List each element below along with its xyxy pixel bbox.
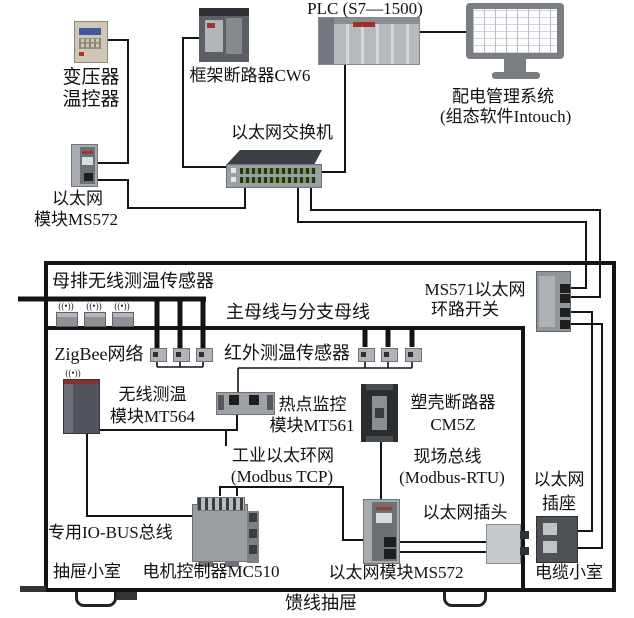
side-port — [249, 545, 257, 554]
module-stripe — [376, 507, 392, 510]
infrared-sensor-icon — [358, 348, 375, 362]
mt564-wireless-temp-module — [63, 379, 100, 434]
monitor-stand — [504, 59, 526, 72]
iobus-label: 专用IO-BUS总线 — [48, 524, 203, 542]
monitor-device — [466, 3, 564, 59]
module-side — [64, 384, 73, 433]
switch-led — [231, 177, 236, 182]
wireless-temp-sensor-icon — [112, 312, 134, 327]
plug-pin — [520, 547, 529, 555]
cm5z-label-line1: 塑壳断路器 — [399, 394, 507, 412]
module-stripe — [82, 151, 93, 154]
monitor-screen — [473, 9, 557, 53]
ms571-label-line2: 环路开关 — [405, 301, 525, 319]
diagram-root: ((•)) ((•)) ((•)) ((•)) — [0, 0, 634, 618]
cable-cell-label: 电缆小室 — [526, 564, 612, 582]
mt561-hotspot-module — [216, 392, 275, 415]
transformer-temp-controller-device — [74, 21, 108, 63]
breaker-tab — [366, 384, 393, 390]
cw6-frame-breaker-device — [199, 8, 249, 62]
feeder-drawer-label: 馈线抽屉 — [274, 594, 368, 613]
ms572-left-label-line1: 以太网 — [40, 190, 115, 208]
ethernet-switch-top — [226, 150, 322, 165]
mt561-label-line2: 模块MT561 — [262, 417, 362, 435]
ms572-bottom-label: 以太网模块MS572 — [312, 564, 480, 582]
plc-cpu-module — [319, 18, 334, 64]
breaker-toggle — [375, 408, 384, 418]
ring-label-line2: (Modbus TCP) — [216, 468, 348, 486]
side-port — [249, 513, 257, 522]
terminal-strip — [197, 497, 245, 511]
busbar-sensors-label: 母排无线测温传感器 — [52, 272, 242, 291]
module-label-strip — [376, 513, 392, 523]
infrared-sensor-icon — [405, 348, 422, 362]
cm5z-molded-case-breaker-device — [361, 384, 398, 442]
ethernet-plug-device — [486, 524, 521, 564]
zigbee-label: ZigBee网络 — [48, 345, 150, 364]
socket-label-line1: 以太网 — [528, 471, 590, 489]
wireless-temp-sensor-icon — [84, 312, 106, 327]
lcd-display — [79, 28, 101, 35]
mt564-label-line1: 无线测温 — [105, 386, 200, 404]
sensor-top — [113, 313, 133, 317]
module-cap — [218, 395, 224, 410]
breaker-tab — [366, 436, 393, 442]
infrared-sensor-icon — [196, 348, 213, 362]
antenna-icon: ((•)) — [110, 302, 134, 311]
indicator-led — [79, 52, 84, 56]
ethernet-socket-device — [536, 516, 578, 563]
ethernet-port — [384, 537, 396, 547]
socket-hole — [543, 541, 557, 553]
drawer-cell-label: 抽屉小室 — [48, 563, 126, 581]
wire-plc-switch — [322, 63, 345, 172]
ethernet-port — [84, 173, 93, 181]
plc-label: PLC (S7—1500) — [292, 0, 438, 18]
ms572-left-module — [71, 144, 98, 187]
sensor-port — [229, 395, 239, 405]
ethernet-port — [560, 320, 570, 329]
antenna-icon: ((•)) — [60, 369, 86, 378]
fieldbus-label-line1: 现场总线 — [395, 448, 500, 466]
fieldbus-label-line2: (Modbus-RTU) — [388, 469, 516, 487]
ethernet-port — [384, 549, 396, 559]
sensor-top — [85, 313, 105, 317]
switch-label: 以太网交换机 — [228, 124, 336, 142]
pms-label-line1: 配电管理系统 — [444, 88, 562, 106]
ms572-bottom-module — [363, 499, 400, 564]
pms-label-line2: (组态软件Intouch) — [440, 108, 566, 126]
ms571-label-line1: MS571以太网 — [405, 281, 545, 299]
ethernet-port — [560, 308, 570, 317]
socket-label-line2: 插座 — [528, 495, 590, 513]
drawer-tab — [20, 586, 46, 592]
ethernet-ports-row — [240, 177, 316, 183]
sensor-top — [57, 313, 77, 317]
antenna-icon: ((•)) — [82, 302, 106, 311]
ethernet-switch-device — [226, 164, 322, 188]
switch-led — [231, 168, 236, 173]
plug-label: 以太网插头 — [415, 504, 515, 522]
ms572-left-label-line2: 模块MS572 — [24, 211, 128, 229]
ethernet-ports-row — [240, 168, 316, 174]
transformer-label-line2: 温控器 — [58, 90, 124, 111]
wire-ms572-switch — [96, 180, 245, 208]
antenna-icon: ((•)) — [54, 302, 78, 311]
drawer-handle — [443, 592, 487, 607]
main-bus-label: 主母线与分支母线 — [213, 303, 383, 322]
ethernet-port — [560, 294, 570, 303]
side-port — [249, 529, 257, 538]
wire-ms571-socket-b — [569, 324, 602, 548]
module-label-strip — [82, 157, 93, 165]
plc-device — [318, 17, 420, 65]
mt564-label-line2: 模块MT564 — [100, 408, 205, 426]
drawer-tab — [117, 592, 137, 600]
infrared-sensor-icon — [150, 348, 167, 362]
cm5z-label-line2: CM5Z — [399, 416, 507, 434]
cw6-label: 框架断路器CW6 — [184, 67, 316, 85]
monitor-base — [492, 72, 540, 79]
ethernet-port — [560, 284, 570, 293]
wireless-temp-sensor-icon — [56, 312, 78, 327]
infrared-sensor-icon — [381, 348, 398, 362]
breaker-panel — [226, 18, 242, 54]
plc-badge — [353, 22, 375, 27]
mt561-label-line1: 热点监控 — [270, 396, 355, 414]
transformer-label-line1: 变压器 — [58, 68, 124, 89]
wire-iobus — [87, 431, 193, 516]
infrared-sensor-icon — [173, 348, 190, 362]
infrared-label: 红外测温传感器 — [216, 344, 358, 363]
socket-hole — [543, 523, 557, 535]
drawer-handle — [75, 592, 117, 607]
breaker-badge — [207, 23, 215, 28]
sensor-port — [249, 395, 259, 405]
plug-pin — [520, 531, 529, 539]
ring-label-line1: 工业以太环网 — [222, 447, 344, 465]
breaker-top — [199, 8, 249, 16]
mc510-label: 电机控制器MC510 — [138, 563, 284, 581]
keypad — [79, 38, 101, 49]
